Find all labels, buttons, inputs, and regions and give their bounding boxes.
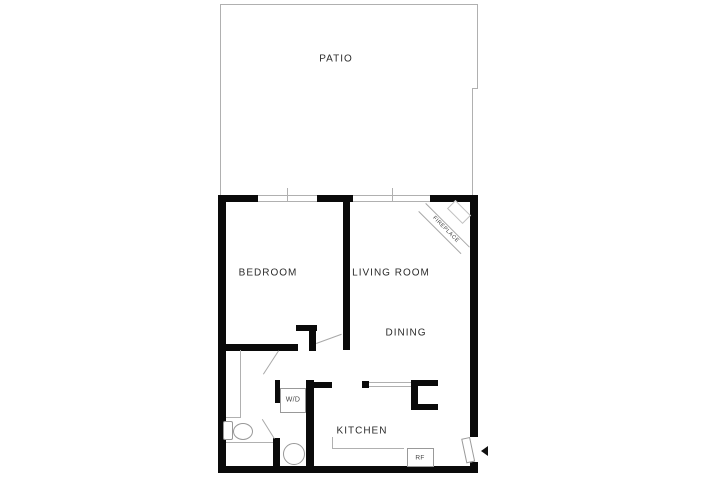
wall-kitchen-west [306, 380, 314, 466]
dining-label: DINING [386, 328, 427, 339]
hall-dining-door-leaf [316, 334, 342, 344]
wall-kitchen-bracket-top [418, 380, 438, 386]
entry-door-leaf [461, 437, 475, 463]
bedroom-label: BEDROOM [239, 268, 298, 279]
wall-right-upper [470, 195, 478, 437]
patio-outline-left [220, 4, 221, 196]
refrigerator-label: RF [415, 455, 424, 462]
patio-label: PATIO [319, 54, 353, 65]
bath-closet-line-vertical [240, 350, 241, 417]
living-room-label: LIVING ROOM [352, 268, 430, 279]
wall-hall-l-vertical [309, 325, 316, 351]
entry-arrow-icon [481, 446, 488, 456]
kitchen-counter-edge-vertical [332, 437, 333, 448]
toilet-bowl-icon [233, 423, 253, 440]
wall-bedroom-south [226, 344, 298, 351]
toilet-tank-icon [223, 421, 233, 440]
wall-top-segment-2 [317, 195, 353, 202]
living-room-window-mullion [392, 188, 393, 202]
wall-bottom [218, 466, 478, 473]
wall-kitchen-bracket-bottom [418, 404, 438, 410]
water-heater-icon [283, 443, 305, 465]
kitchen-counter-edge-horizontal [332, 448, 404, 449]
floor-plan: FIREPLACE W/D RF PATIO BEDROOM LIVING RO… [0, 0, 701, 485]
patio-outline-right-lower [472, 88, 473, 196]
kitchen-label: KITCHEN [337, 426, 388, 437]
bathtub-edge-line [226, 442, 273, 443]
bathroom-door-leaf [262, 419, 275, 439]
bedroom-door-leaf [263, 350, 279, 374]
fireplace-hearth-icon [447, 200, 471, 224]
wall-kitchen-bracket-vertical [411, 380, 418, 410]
patio-outline-right-upper [477, 4, 478, 89]
washer-dryer-label: W/D [286, 397, 301, 404]
wall-bedroom-living-divider [343, 202, 350, 350]
bath-closet-line-horizontal [226, 417, 241, 418]
wall-kitchen-counter-post [362, 381, 369, 388]
wall-bath-east-lower [273, 438, 280, 466]
bedroom-window-mullion [287, 188, 288, 202]
kitchen-passthrough-counter [369, 382, 411, 387]
patio-outline-top [220, 4, 478, 5]
